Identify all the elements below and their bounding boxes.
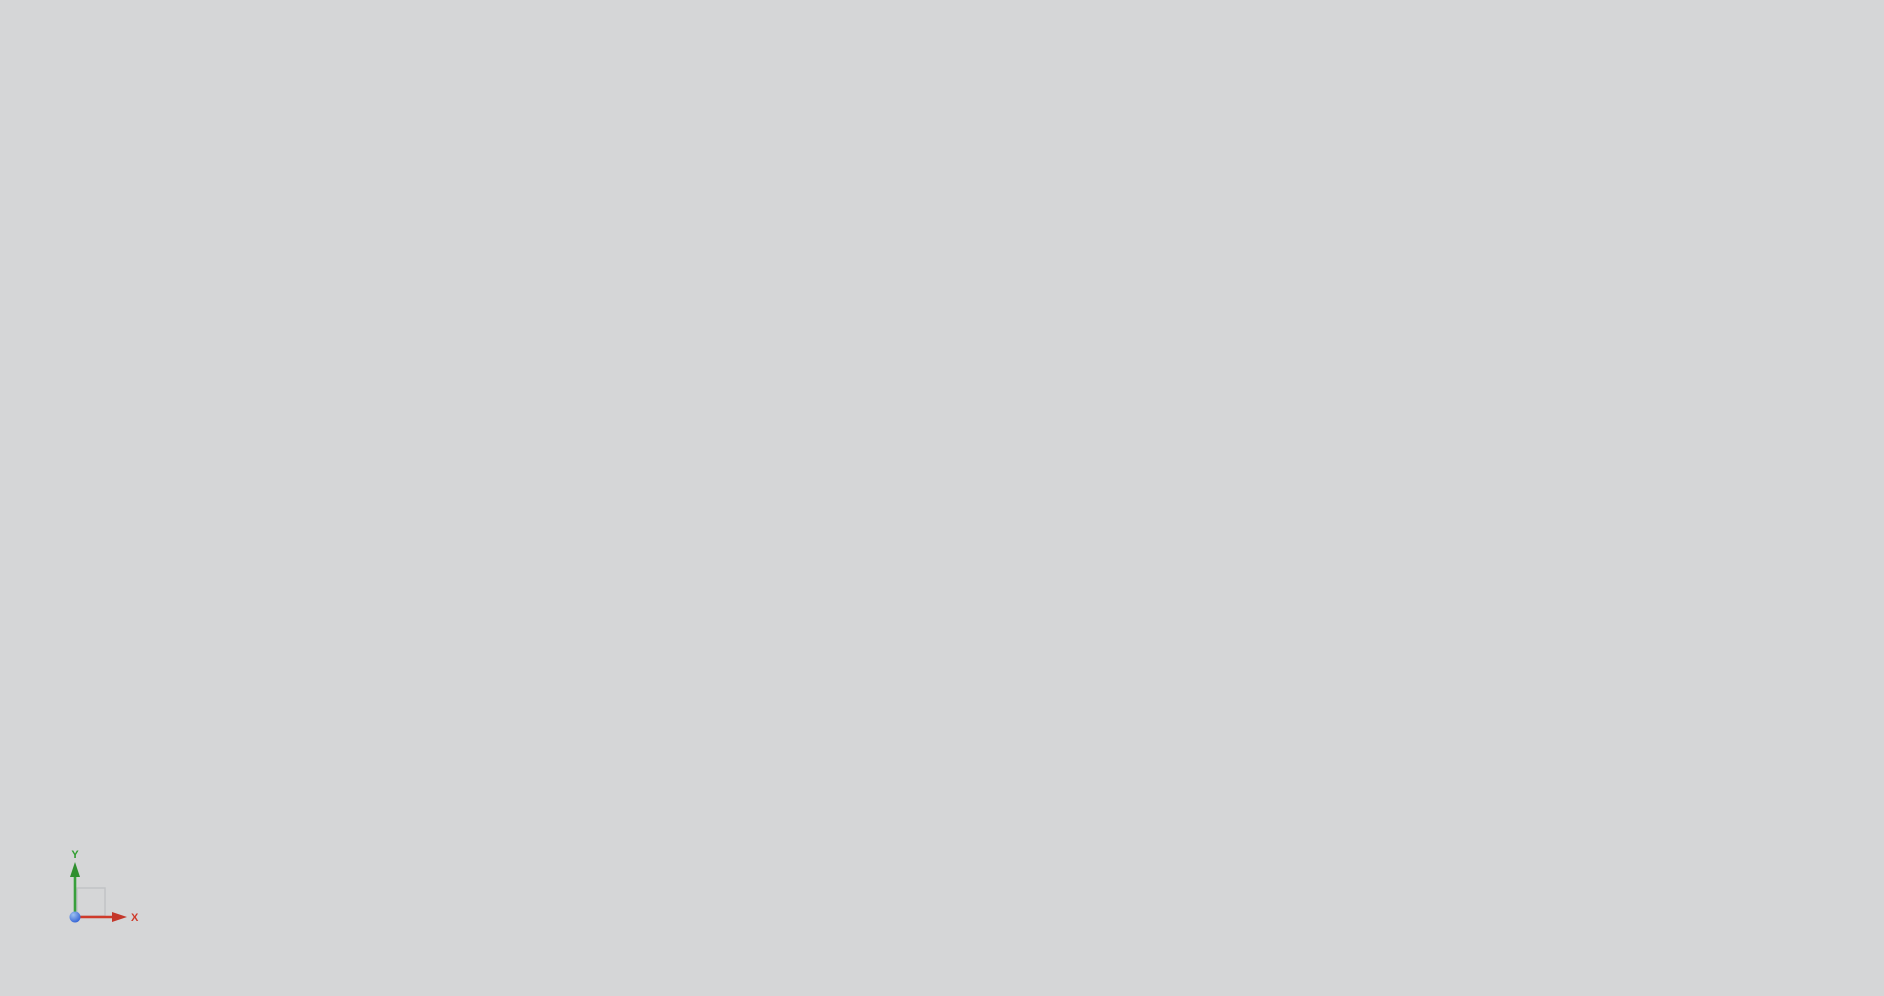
x-axis-arrowhead [112, 912, 127, 922]
cad-3d-viewport[interactable]: Y X [0, 0, 1884, 996]
y-axis-arrowhead [70, 862, 80, 877]
origin-sphere [70, 912, 81, 923]
y-axis-label: Y [71, 849, 79, 861]
axis-triad: Y X [70, 849, 140, 924]
sprue-render-canvas[interactable]: Y X [0, 0, 1884, 996]
x-axis-label: X [131, 912, 139, 924]
axis-plane-box [77, 888, 105, 916]
